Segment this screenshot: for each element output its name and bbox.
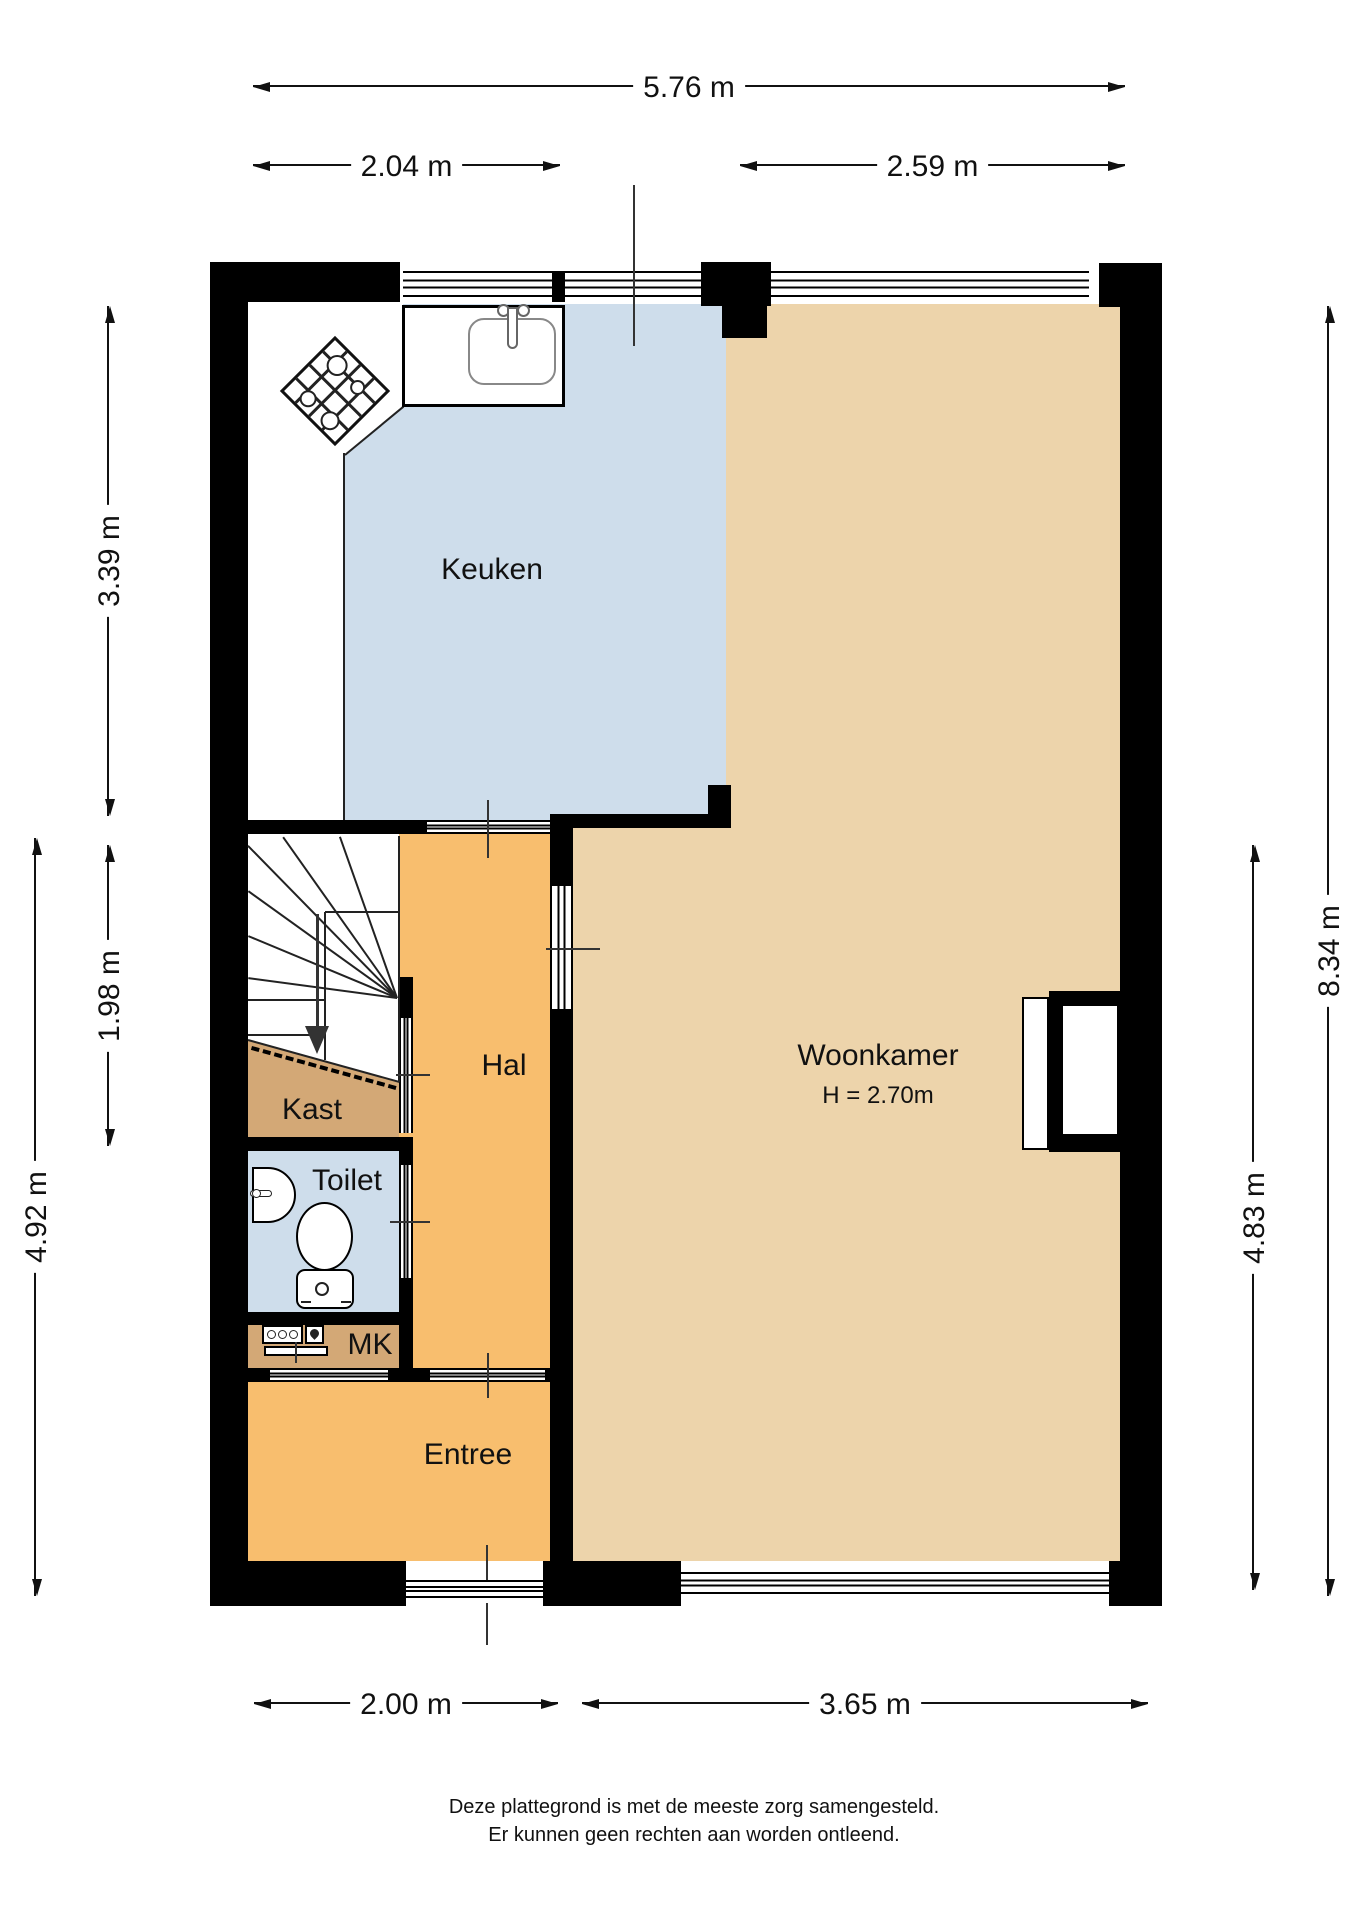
wall-below-toilet-door (399, 1278, 413, 1382)
counter-edge-line (343, 453, 345, 822)
floor-hal (399, 834, 550, 1382)
meter-tick (295, 1342, 297, 1363)
dim-bottom-left: 2.00 m (254, 1702, 558, 1704)
wall-top-left (248, 262, 400, 302)
dim-label: 8.34 m (1313, 895, 1347, 1007)
tick-hal-entree-door (487, 1353, 489, 1398)
meter-dial (289, 1330, 298, 1339)
meter-dial (267, 1330, 276, 1339)
wall-entree-band-c (545, 1368, 557, 1382)
dim-label: 3.39 m (93, 505, 127, 617)
wall-bottom-right-pier (1109, 1561, 1162, 1606)
wall-stair-stub (399, 977, 413, 1018)
wall-toilet-mk (248, 1312, 413, 1325)
wall-window-mullion (552, 271, 565, 302)
dim-label: 2.04 m (351, 150, 463, 184)
room-label-toilet: Toilet (312, 1164, 382, 1198)
room-label-mk: MK (348, 1328, 393, 1362)
floor-woonkamer (726, 304, 1120, 1561)
wall-bottom-left (210, 1561, 406, 1606)
tick-front-door-top (486, 1545, 488, 1580)
dim-bottom-right: 3.65 m (582, 1702, 1148, 1704)
dim-top-right: 2.59 m (740, 164, 1125, 166)
wall-keuken-stairs (248, 820, 427, 834)
dim-right-living: 4.83 m (1252, 845, 1254, 1590)
stair-winder-line (339, 836, 398, 998)
tick-front-door-bottom (486, 1603, 488, 1645)
dim-left-kitchen: 3.39 m (107, 306, 109, 816)
dim-label: 4.92 m (20, 1161, 54, 1273)
front-door (406, 1580, 543, 1598)
toilet-flush-button (315, 1282, 329, 1296)
room-label-woonkamer: Woonkamer (797, 1039, 958, 1073)
meter-dial (278, 1330, 287, 1339)
sink-tap-knob-right (517, 304, 530, 317)
footer-disclaimer-line2: Er kunnen geen rechten aan worden ontlee… (488, 1824, 899, 1847)
wall-kast-toilet (248, 1137, 413, 1151)
toilet-cistern-mark (341, 1301, 351, 1303)
dim-left-stairs: 1.98 m (107, 845, 109, 1146)
window-top-a (403, 271, 552, 297)
dim-label: 4.83 m (1238, 1162, 1272, 1274)
tick-keuken-hal-door (487, 800, 489, 858)
dim-label: 5.76 m (633, 71, 745, 105)
dim-label: 3.65 m (809, 1688, 921, 1722)
toilet-cistern-mark (301, 1301, 311, 1303)
wall-keuken-end-block (708, 785, 731, 828)
room-label-keuken: Keuken (441, 553, 543, 587)
dim-right-total: 8.34 m (1327, 306, 1329, 1596)
tick-kast-door (396, 1074, 430, 1076)
window-top-c (771, 271, 1089, 297)
dim-label: 2.59 m (877, 150, 989, 184)
footer-disclaimer-line1: Deze plattegrond is met de meeste zorg s… (449, 1796, 939, 1819)
wall-hal-woonkamer-top (550, 814, 573, 886)
wall-top-pier (701, 262, 771, 306)
stair-edge-line (398, 836, 400, 1082)
dim-top-left: 2.04 m (253, 164, 560, 166)
wall-entree-band-a (248, 1368, 270, 1382)
chimney-flue (1063, 1006, 1117, 1134)
wall-entree-band-b (388, 1368, 430, 1382)
stair-winder-line (247, 845, 397, 999)
room-label-kast: Kast (282, 1093, 342, 1127)
floorplan-canvas: Keuken Woonkamer H = 2.70m Hal Kast Toil… (0, 0, 1358, 1920)
wall-bottom-middle (543, 1561, 681, 1606)
room-label-entree: Entree (424, 1438, 512, 1472)
floor-woonkamer-lower-left (573, 828, 726, 1561)
wall-keuken-woonkamer (557, 814, 731, 828)
chimney-shelf (1022, 997, 1049, 1150)
stair-flight-line-h (325, 911, 399, 913)
washbasin-tap-knob (252, 1189, 261, 1198)
dim-left-total: 4.92 m (34, 838, 36, 1596)
toilet-icon (296, 1202, 353, 1271)
dim-label: 2.00 m (350, 1688, 462, 1722)
window-woonkamer-bottom (681, 1572, 1109, 1594)
room-label-hal: Hal (481, 1049, 526, 1083)
dim-label: 1.98 m (93, 940, 127, 1052)
dim-top-total: 5.76 m (253, 85, 1125, 87)
wall-left (210, 262, 248, 1606)
wall-top-pier-stub (722, 306, 767, 338)
room-height-note: H = 2.70m (822, 1082, 933, 1110)
sink-tap-spout (507, 307, 518, 349)
wall-right (1120, 263, 1162, 1606)
tick-toilet-door (390, 1221, 430, 1223)
tick-top-split (633, 185, 635, 346)
wall-toilet-door-head (399, 1151, 413, 1165)
tick-hal-woonkamer-door (546, 948, 600, 950)
door-mk (270, 1368, 388, 1382)
stair-direction-arrow-shaft (316, 914, 319, 1028)
stair-tread-line (248, 999, 325, 1001)
wall-hal-woonkamer-main (550, 1009, 573, 1561)
stair-direction-arrow-head (305, 1026, 329, 1054)
